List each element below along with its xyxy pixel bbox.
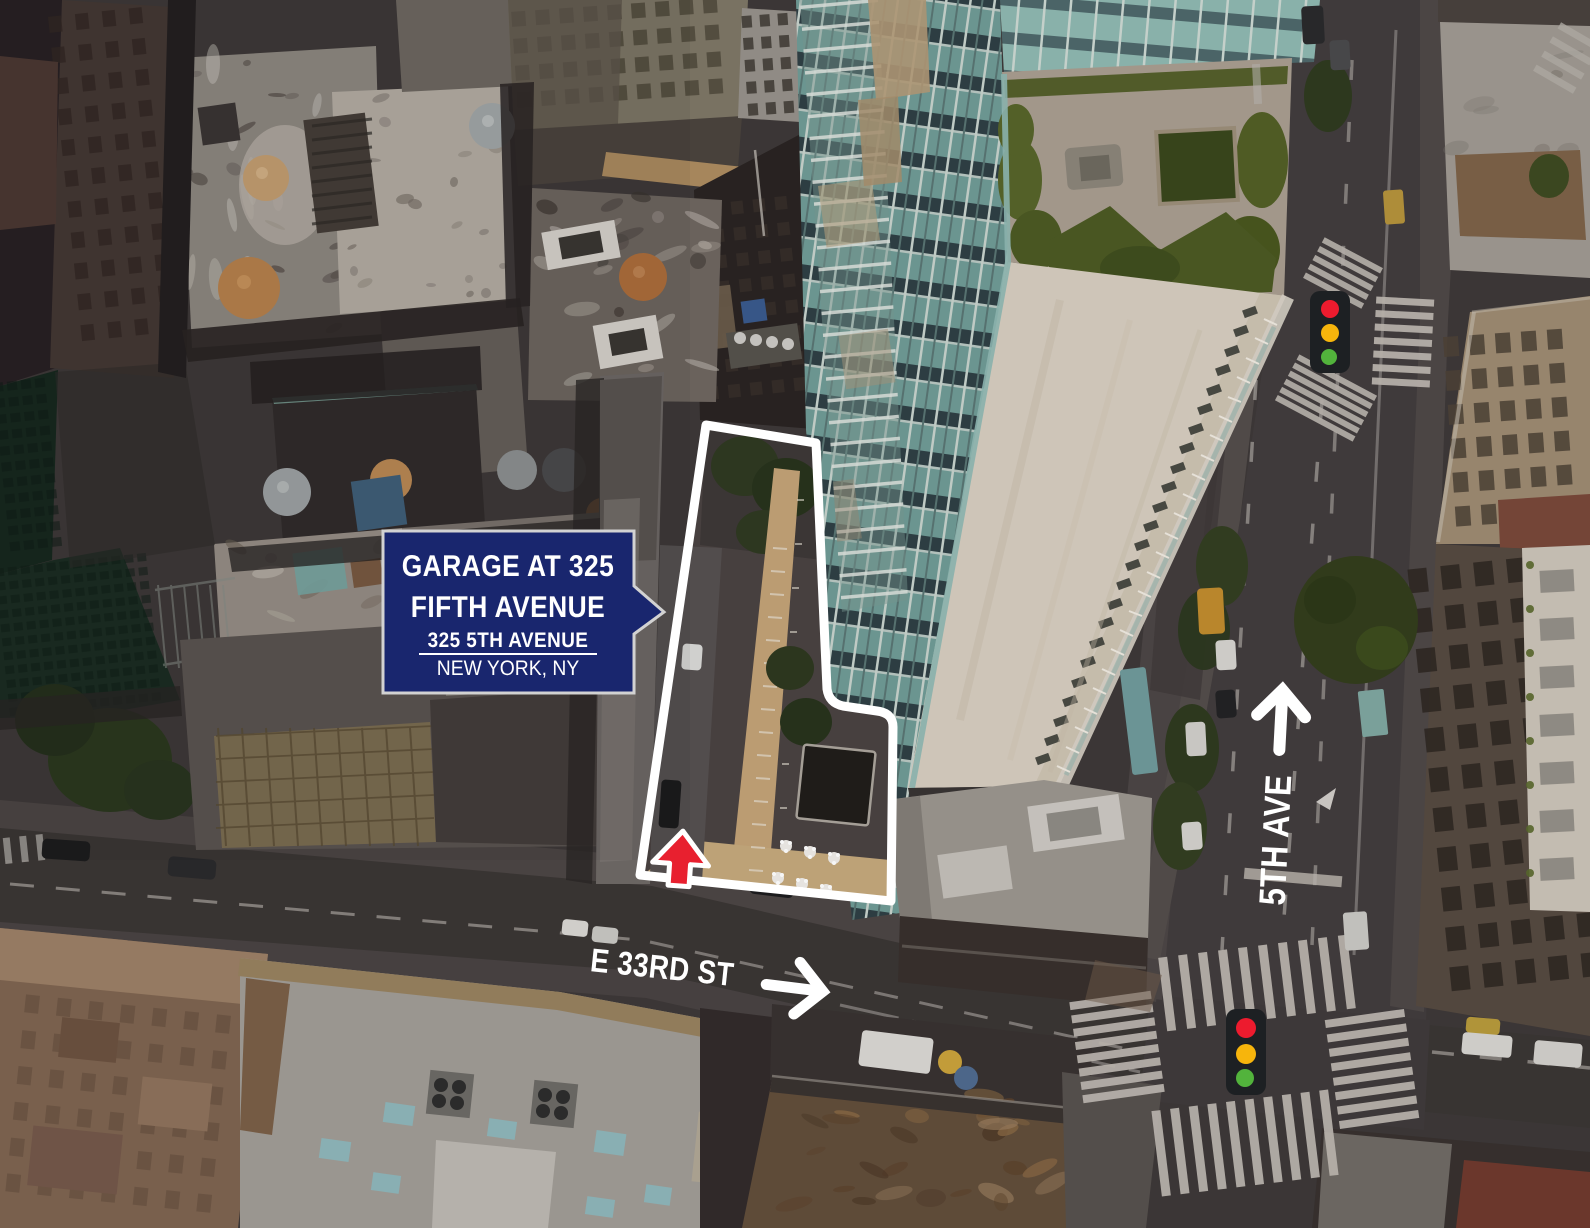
svg-text:GARAGE AT 325: GARAGE AT 325	[402, 550, 615, 583]
svg-text:5TH AVE: 5TH AVE	[1252, 774, 1300, 907]
svg-text:NEW YORK, NY: NEW YORK, NY	[437, 657, 579, 680]
svg-text:325 5TH AVENUE: 325 5TH AVENUE	[428, 629, 589, 652]
svg-text:FIFTH AVENUE: FIFTH AVENUE	[411, 591, 605, 624]
